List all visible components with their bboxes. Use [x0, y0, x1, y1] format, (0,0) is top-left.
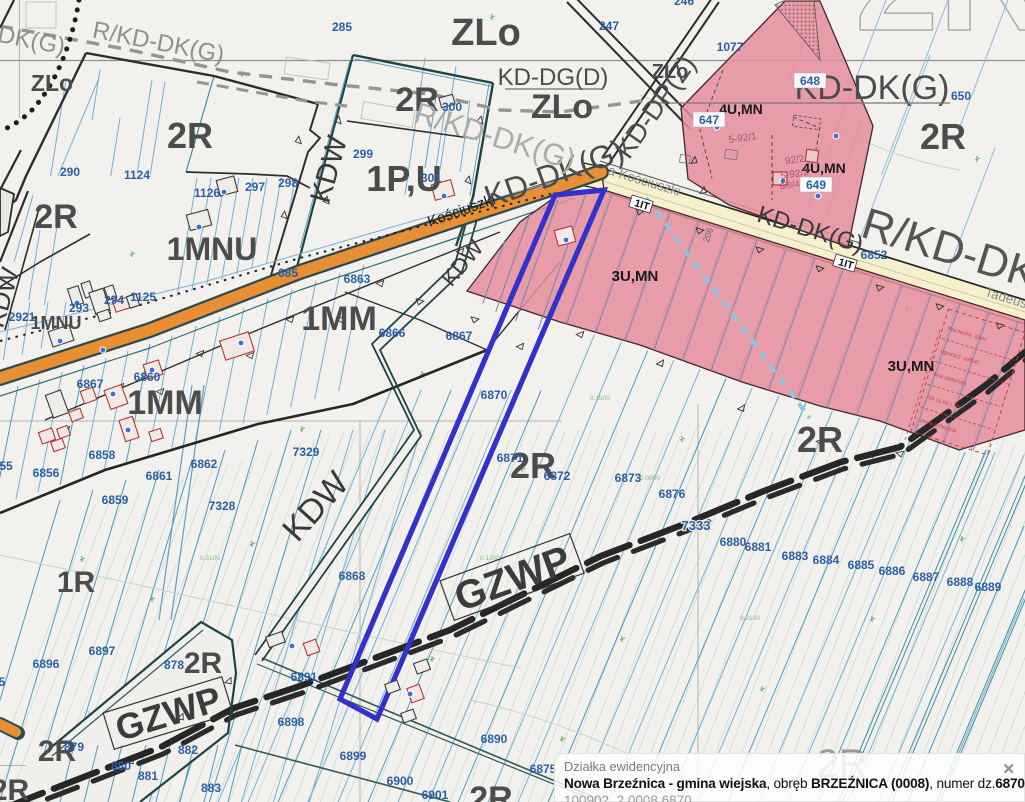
- svg-text:2R: 2R: [469, 780, 512, 802]
- svg-text:7328: 7328: [209, 499, 236, 513]
- svg-text:KD-DG(D): KD-DG(D): [498, 64, 609, 91]
- svg-text:647: 647: [699, 113, 719, 127]
- svg-text:6859: 6859: [102, 493, 129, 507]
- svg-text:6860: 6860: [134, 370, 161, 384]
- svg-text:6884: 6884: [813, 553, 840, 567]
- svg-text:6897: 6897: [89, 644, 116, 658]
- svg-text:285: 285: [332, 20, 352, 34]
- svg-text:0.0800: 0.0800: [640, 475, 660, 482]
- svg-text:6856: 6856: [33, 466, 60, 480]
- svg-text:1MNU: 1MNU: [30, 313, 81, 333]
- svg-text:6901: 6901: [422, 788, 449, 802]
- svg-text:0.2100: 0.2100: [740, 615, 760, 622]
- svg-text:6890: 6890: [481, 732, 508, 746]
- svg-text:ZLo: ZLo: [451, 12, 521, 54]
- svg-text:6871: 6871: [497, 451, 524, 465]
- svg-text:6866: 6866: [379, 326, 406, 340]
- svg-text:6885: 6885: [848, 558, 875, 572]
- svg-text:6898: 6898: [278, 715, 305, 729]
- svg-text:6887: 6887: [913, 570, 940, 584]
- svg-text:1125: 1125: [130, 290, 156, 304]
- svg-text:685: 685: [278, 266, 298, 280]
- svg-text:6867: 6867: [77, 377, 104, 391]
- svg-text:297: 297: [245, 180, 265, 194]
- svg-text:ZLo: ZLo: [531, 88, 593, 126]
- svg-text:247: 247: [599, 19, 619, 33]
- svg-text:1R: 1R: [57, 566, 96, 599]
- svg-text:6881: 6881: [745, 540, 772, 554]
- svg-text:6889: 6889: [975, 580, 1002, 594]
- svg-text:6883: 6883: [782, 549, 809, 563]
- svg-text:648: 648: [800, 74, 820, 88]
- svg-text:6863: 6863: [344, 272, 371, 286]
- svg-text:882: 882: [178, 743, 198, 757]
- svg-text:6875: 6875: [530, 762, 557, 776]
- svg-text:2R: 2R: [797, 419, 843, 460]
- svg-text:4U,MN: 4U,MN: [719, 101, 763, 117]
- svg-text:883: 883: [201, 781, 221, 795]
- svg-text:3U,MN: 3U,MN: [612, 268, 659, 285]
- svg-text:6886: 6886: [879, 564, 906, 578]
- svg-text:6880: 6880: [720, 535, 747, 549]
- svg-text:6896: 6896: [33, 657, 60, 671]
- svg-text:1077: 1077: [717, 40, 744, 54]
- svg-text:301: 301: [421, 171, 441, 185]
- svg-text:6899: 6899: [340, 749, 367, 763]
- svg-text:3U,MN: 3U,MN: [888, 358, 935, 375]
- svg-text:6876: 6876: [659, 487, 686, 501]
- svg-text:649: 649: [806, 178, 826, 192]
- svg-text:1MM: 1MM: [127, 384, 203, 422]
- svg-text:881: 881: [138, 769, 158, 783]
- svg-text:6861: 6861: [146, 469, 173, 483]
- svg-text:5: 5: [0, 675, 6, 689]
- svg-text:650: 650: [951, 89, 971, 103]
- svg-text:2R: 2R: [184, 647, 223, 680]
- svg-text:1124: 1124: [124, 168, 150, 182]
- svg-text:2R: 2R: [167, 115, 213, 156]
- svg-text:6870: 6870: [481, 388, 508, 402]
- svg-text:2R: 2R: [855, 0, 1025, 62]
- svg-text:0.3100: 0.3100: [200, 555, 220, 562]
- svg-text:6873: 6873: [615, 471, 642, 485]
- svg-text:0.1500: 0.1500: [590, 395, 610, 402]
- svg-text:6872: 6872: [544, 469, 571, 483]
- svg-text:6888: 6888: [947, 575, 974, 589]
- svg-text:2R: 2R: [0, 774, 30, 802]
- svg-text:2921: 2921: [9, 310, 36, 324]
- svg-text:1126: 1126: [194, 186, 220, 200]
- svg-text:6867: 6867: [446, 329, 473, 343]
- svg-text:6862: 6862: [191, 457, 218, 471]
- svg-text:2R: 2R: [34, 198, 77, 236]
- svg-text:6891: 6891: [291, 670, 318, 684]
- svg-text:298: 298: [278, 176, 298, 190]
- svg-text:55: 55: [0, 459, 13, 473]
- svg-text:7333: 7333: [682, 518, 711, 533]
- svg-text:294: 294: [104, 293, 124, 307]
- svg-text:1MNU: 1MNU: [167, 231, 258, 267]
- svg-text:6852: 6852: [861, 248, 888, 262]
- svg-text:290: 290: [60, 165, 80, 179]
- svg-text:7329: 7329: [293, 445, 320, 459]
- svg-text:879: 879: [64, 740, 84, 754]
- svg-text:880: 880: [111, 759, 131, 773]
- svg-text:6868: 6868: [339, 569, 366, 583]
- svg-text:299: 299: [353, 147, 373, 161]
- svg-text:6858: 6858: [89, 448, 116, 462]
- svg-text:293: 293: [69, 301, 89, 315]
- svg-text:300: 300: [442, 100, 462, 114]
- svg-text:246: 246: [674, 0, 694, 8]
- svg-text:ZLo: ZLo: [31, 70, 73, 96]
- svg-text:1MM: 1MM: [301, 300, 377, 338]
- svg-text:2R: 2R: [920, 116, 966, 157]
- svg-text:878: 878: [164, 658, 184, 672]
- svg-text:6900: 6900: [387, 774, 414, 788]
